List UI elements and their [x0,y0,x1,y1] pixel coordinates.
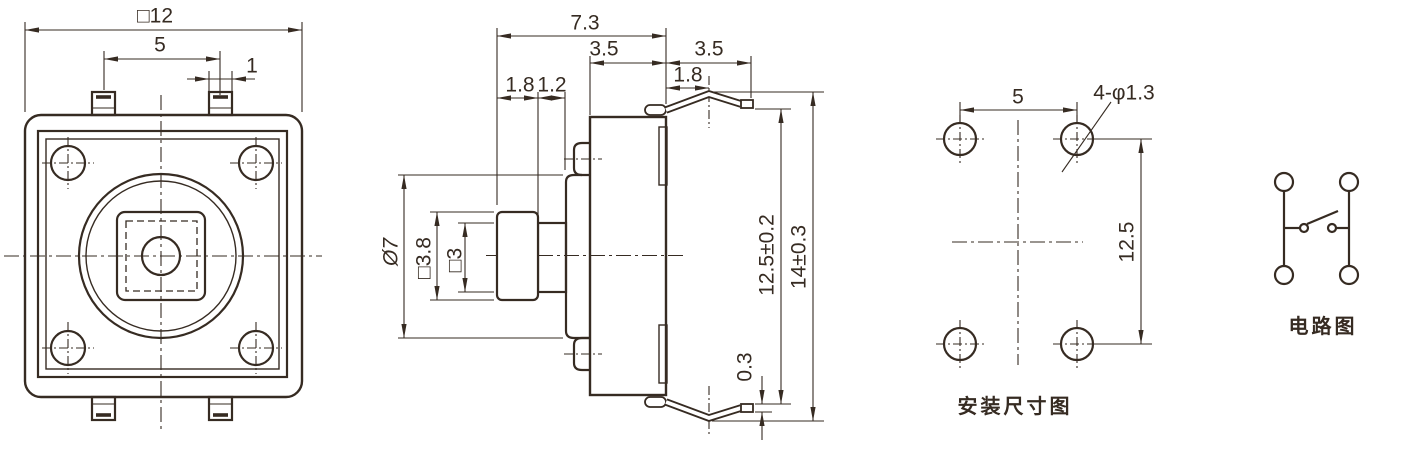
dim-plunger-neck-depth-label: 1.2 [537,74,566,97]
dim-side-lead-span: 12.5±0.2 [756,109,782,404]
dim-front-body-width: □12 [25,5,302,113]
flange-side-profile [566,175,590,338]
dim-side-body-depth: 3.5 [589,38,666,64]
body-frame-outer [38,131,287,377]
dim-front-pin-spacing-label: 5 [154,34,166,57]
dim-lead-thickness-label: 0.3 [734,352,757,381]
dim-front-pin-spacing: 5 [104,34,220,96]
switch-symbol [1300,211,1338,232]
circuit-view-caption: 电路图 [1289,314,1358,338]
plunger-neck-side [538,223,566,292]
dim-side-overall-height: 14±0.3 [788,92,814,421]
dim-side-lead-extension-label: 3.5 [694,38,723,61]
dim-side-lead-thickness: 0.3 [734,352,763,440]
plunger-tip-side [497,212,538,300]
dim-side-total-depth-label: 7.3 [570,12,599,35]
circuit-view: 电路图 [1275,173,1358,338]
dim-side-total-depth: 7.3 [497,12,666,37]
dim-plunger-tip-depth-label: 1.8 [505,74,534,97]
dim-overall-height-label: 14±0.3 [788,225,811,289]
hole-diameter-callout-label: 4-φ1.3 [1093,82,1154,105]
dim-flange-diameter-label: Ø7 [380,237,403,267]
dim-hole-spacing-h-label: 5 [1012,86,1024,109]
dim-side-plunger-depths: 1.8 1.2 [497,74,567,99]
dim-tip-square-label: □3.8 [413,237,436,279]
technical-drawing-sheet: □12 5 1 [0,0,1411,462]
dim-side-tip-square: □3.8 [413,212,438,300]
mounting-view-caption: 安装尺寸图 [958,394,1073,418]
top-lead [645,94,753,115]
dim-mounting-hole-spacing-v: 12.5 [1095,139,1152,344]
dim-mounting-hole-spacing-h: 5 [960,86,1077,125]
dim-front-pin-width: 1 [187,55,258,92]
dim-lead-span-label: 12.5±0.2 [756,214,779,296]
circuit-wires [1284,191,1349,266]
dim-side-flange-diameter: Ø7 [380,175,405,338]
dim-neck-square-label: □3 [444,248,467,272]
side-view: 7.3 3.5 3.5 1.8 1.8 1.2 Ø7 □3.8 [380,12,825,441]
dim-side-lead-extension: 3.5 [666,38,751,64]
dim-side-lead-bend-label: 1.8 [673,64,702,87]
tact-switch-drawing: □12 5 1 [0,0,1411,462]
dim-front-pin-width-label: 1 [246,55,258,78]
dim-front-body-width-label: □12 [137,5,173,28]
bottom-lead [645,397,753,418]
mounting-view: 5 4-φ1.3 12.5 安装尺寸图 [936,82,1155,419]
dim-side-neck-square: □3 [444,223,467,292]
front-view: □12 5 1 [4,5,322,434]
dim-side-body-depth-label: 3.5 [589,38,618,61]
dim-hole-spacing-v-label: 12.5 [1116,222,1139,263]
switch-blade [1307,211,1338,224]
dim-side-lead-bend: 1.8 [666,64,709,89]
